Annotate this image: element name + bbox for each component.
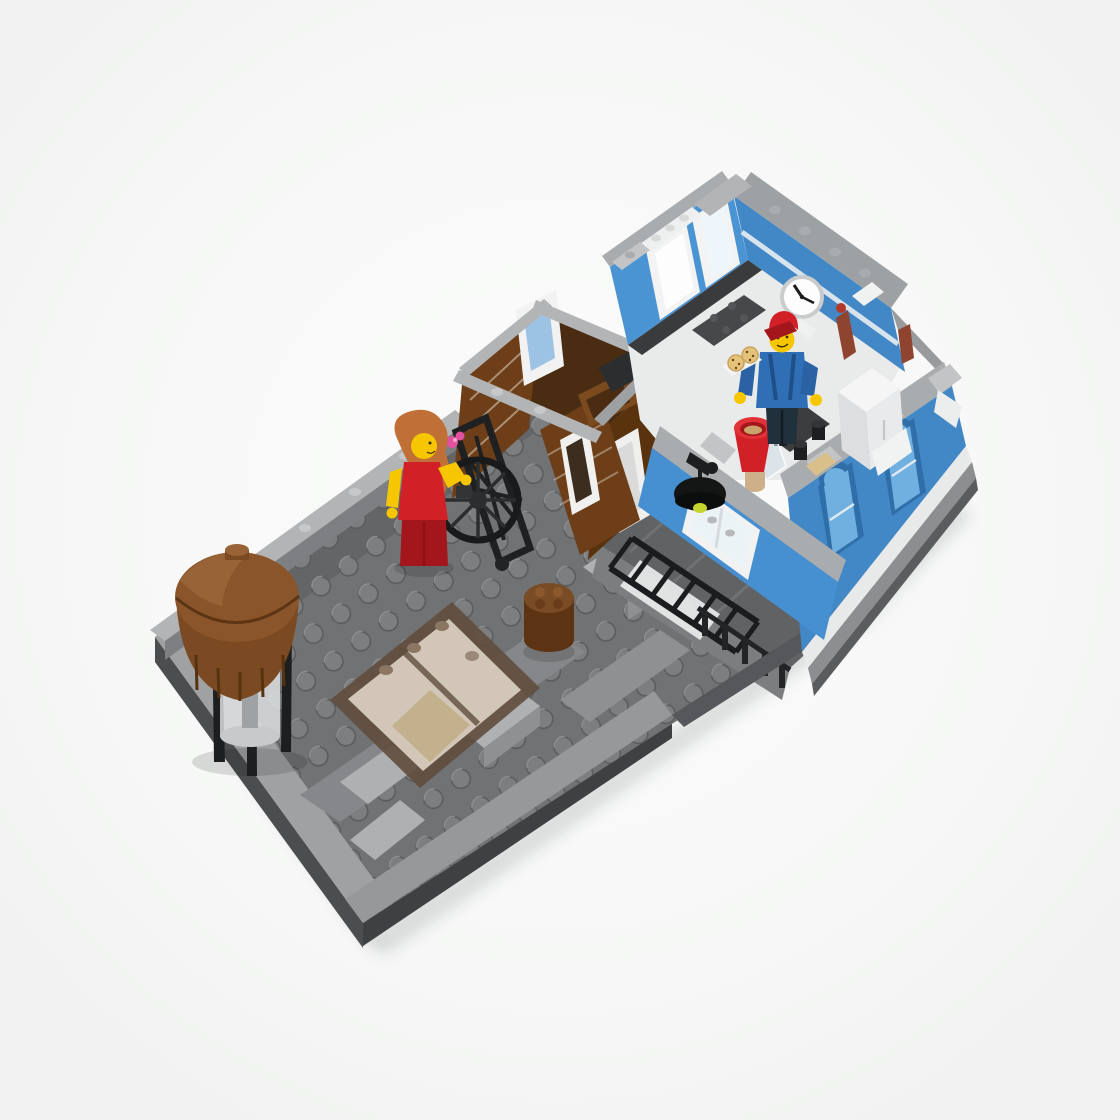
small-barrel [523, 583, 575, 662]
rail-stud [299, 524, 311, 532]
rim-stud [491, 388, 503, 396]
clock-hub [800, 295, 804, 299]
rim-stud [534, 406, 546, 414]
tower-stud-top [225, 544, 249, 556]
chef-torso [756, 352, 808, 408]
woman-hand-left [387, 508, 398, 519]
barrel-bottom [524, 628, 574, 652]
skylight-stud [379, 665, 393, 675]
floor-tile-stud [710, 314, 718, 322]
floor-tile-stud [722, 326, 730, 334]
plate-stud [665, 225, 675, 232]
woman-head [411, 433, 437, 459]
plate-stud [625, 252, 635, 259]
chef-hand-left [734, 392, 746, 404]
plate-stud [679, 215, 689, 222]
chef-eye [786, 336, 789, 339]
flower-center [453, 438, 457, 442]
parapet-stud [859, 269, 871, 278]
floor-tile-stud [740, 314, 748, 322]
skylight-stud [435, 621, 449, 631]
fence-post [779, 664, 785, 688]
parapet-stud [799, 227, 811, 236]
woman-eye [429, 442, 432, 445]
barrel-top [524, 583, 574, 613]
lattice-foot [495, 557, 509, 571]
parapet-stud [829, 248, 841, 257]
flower-pink [456, 432, 465, 441]
funnel-content [744, 426, 762, 435]
parapet-stud [769, 206, 781, 215]
fence-post [702, 612, 708, 636]
skylight-stud [465, 651, 479, 661]
photo-canvas [0, 0, 1120, 1120]
chef-hand-right [810, 394, 822, 406]
fence-post [742, 640, 748, 664]
barrel-stud [535, 587, 545, 597]
rail-stud [349, 488, 361, 496]
stud-behind-glass [725, 530, 735, 537]
pipe-top-1 [836, 303, 846, 313]
lamp-joint [706, 462, 718, 474]
skylight-stud [407, 643, 421, 653]
floor-tile-stud [728, 302, 736, 310]
lamp-bulb [693, 503, 707, 513]
jar-lid [811, 420, 825, 428]
wheel-axle [456, 486, 472, 498]
plate-stud [651, 235, 661, 242]
stud-behind-glass [707, 517, 717, 524]
tan-cup-body [745, 472, 765, 486]
barrel-stud [553, 587, 563, 597]
fence-post [722, 626, 728, 650]
woman-hand-right [461, 475, 472, 486]
tower-tank-bottom [220, 725, 280, 747]
lego-product-photo [0, 0, 1120, 1120]
barrel-stud [535, 599, 545, 609]
barrel-stud [553, 599, 563, 609]
